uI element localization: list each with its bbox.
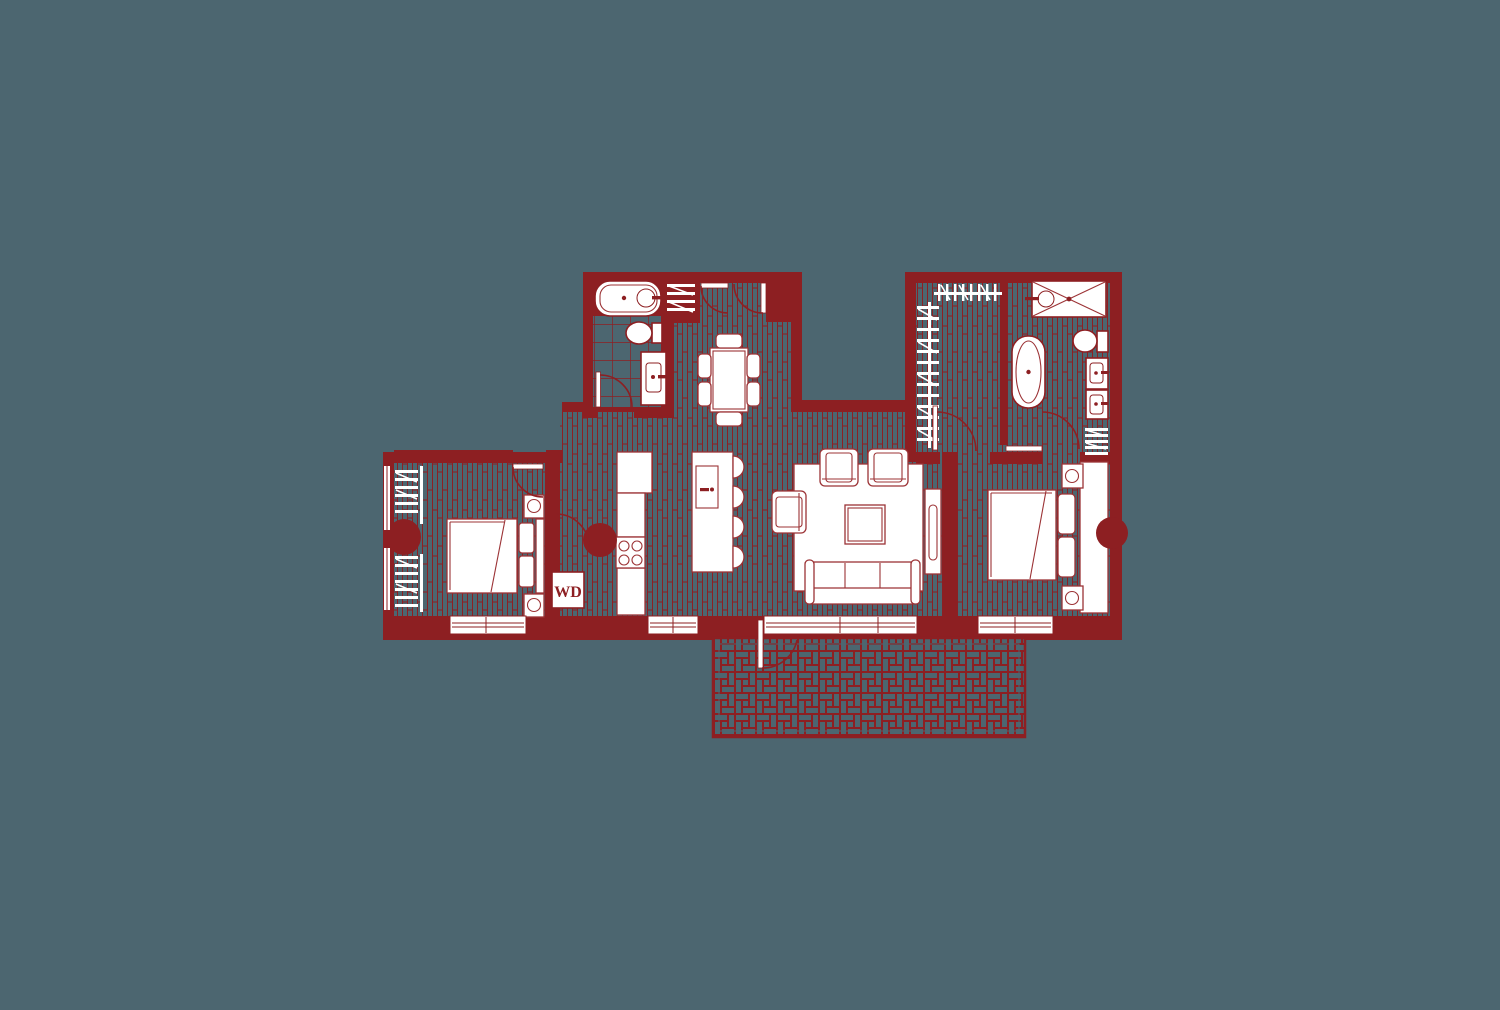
nightstand [1062,464,1083,488]
dining-chair [698,354,711,378]
floor-plan-canvas: WD [0,0,1500,1010]
window [648,616,698,634]
cooktop [616,537,645,568]
wall-bedroom2-top-right [546,450,562,463]
toilet [1073,330,1108,352]
living-room [772,449,941,604]
window [764,616,917,634]
bathroom [583,278,674,418]
dining-chair [698,382,711,406]
wall-living-master [942,452,957,616]
wall-bedroom2-top-left [394,450,513,463]
pillow [1058,537,1075,577]
window [450,616,526,634]
pillow [519,523,534,553]
toilet [626,322,662,344]
dining-chair [747,354,760,378]
nightstand [1062,586,1083,610]
washer-dryer-label: WD [554,584,582,601]
dining-chair [716,334,742,348]
bed [447,519,544,593]
headboard [536,519,544,593]
entry-pier [766,272,802,322]
freestanding-tub [1012,336,1045,408]
column [387,519,421,555]
wall-right-wing-left [905,272,916,462]
floor-plan: WD [0,0,1500,1010]
wall-suite-pier-left [916,452,940,464]
tv-console [925,489,941,574]
sofa [805,560,920,604]
counter-upper [617,452,652,493]
pillow [519,556,534,587]
coffee-table [845,505,885,544]
island [692,452,733,572]
counter-mid [617,493,645,537]
armchair [772,491,806,533]
double-vanity [1086,358,1108,419]
wall-closet-bath-divider [1000,283,1008,445]
counter-lower [617,568,645,615]
nightstand [524,495,544,518]
coat-closet [663,272,700,323]
nightstand [524,594,544,617]
dining-chair [747,382,760,406]
dining-table [710,348,748,412]
armchair [868,449,908,486]
walk-in-shower [1025,281,1106,317]
wall-gap-bottom [791,400,916,410]
bathroom-bottom-wall-right [634,407,662,418]
washer-dryer: WD [552,572,584,608]
armchair [820,449,858,486]
window [978,616,1053,634]
pillow [1058,494,1075,534]
vanity-sink [641,352,666,405]
bathroom-bottom-wall-left [583,407,598,418]
bathtub [595,281,666,316]
wall-suite-pier-mid [990,452,1043,464]
dining-chair [716,412,742,426]
column [1096,517,1128,549]
